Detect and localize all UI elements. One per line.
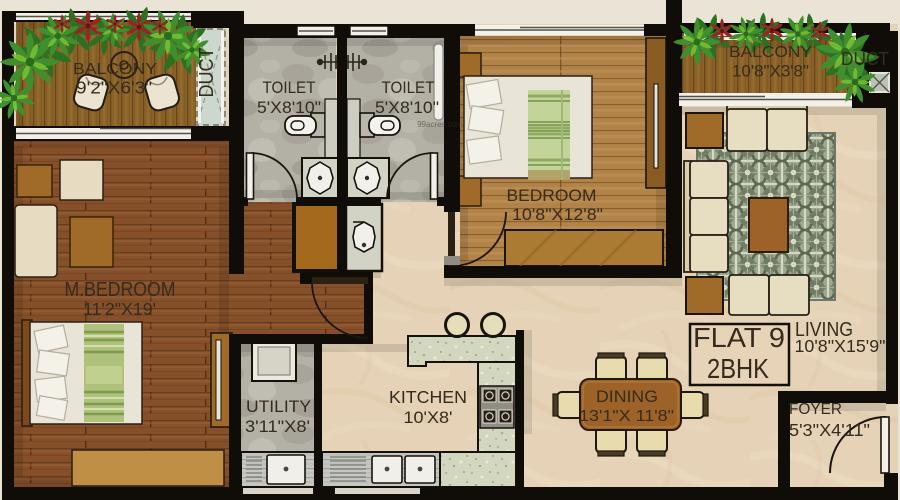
svg-text:BALCONY: BALCONY bbox=[729, 44, 812, 61]
svg-text:M.BEDROOM: M.BEDROOM bbox=[65, 279, 176, 301]
svg-text:10'X8': 10'X8' bbox=[404, 408, 453, 427]
svg-text:13'1"X 11'8": 13'1"X 11'8" bbox=[579, 408, 674, 425]
svg-text:FLAT 9: FLAT 9 bbox=[693, 322, 785, 353]
svg-text:BEDROOM: BEDROOM bbox=[507, 187, 597, 205]
svg-text:10'8"X3'8": 10'8"X3'8" bbox=[732, 62, 809, 81]
svg-text:FOYER: FOYER bbox=[789, 401, 842, 418]
svg-text:DUCT: DUCT bbox=[196, 48, 218, 98]
svg-text:10'8"X15'9": 10'8"X15'9" bbox=[795, 336, 886, 356]
svg-text:99acres.com: 99acres.com bbox=[417, 120, 463, 129]
svg-text:UTILITY: UTILITY bbox=[246, 397, 311, 416]
svg-text:5'X8'10": 5'X8'10" bbox=[257, 99, 321, 117]
svg-text:5'X8'10": 5'X8'10" bbox=[375, 99, 439, 117]
svg-text:DUCT: DUCT bbox=[841, 49, 889, 69]
svg-text:9'2"X6'3": 9'2"X6'3" bbox=[76, 78, 152, 98]
svg-text:2BHK: 2BHK bbox=[707, 353, 769, 384]
svg-text:TOILET: TOILET bbox=[382, 78, 435, 97]
svg-text:TOILET: TOILET bbox=[263, 78, 316, 97]
svg-text:BALCONY: BALCONY bbox=[73, 61, 157, 78]
svg-text:11'2"X19': 11'2"X19' bbox=[83, 299, 156, 319]
svg-text:10'8"X12'8": 10'8"X12'8" bbox=[512, 205, 603, 224]
svg-text:3'11"X8': 3'11"X8' bbox=[245, 417, 310, 436]
svg-text:DINING: DINING bbox=[596, 388, 658, 406]
svg-text:5'3"X4'11": 5'3"X4'11" bbox=[789, 420, 870, 440]
svg-text:KITCHEN: KITCHEN bbox=[389, 387, 467, 407]
